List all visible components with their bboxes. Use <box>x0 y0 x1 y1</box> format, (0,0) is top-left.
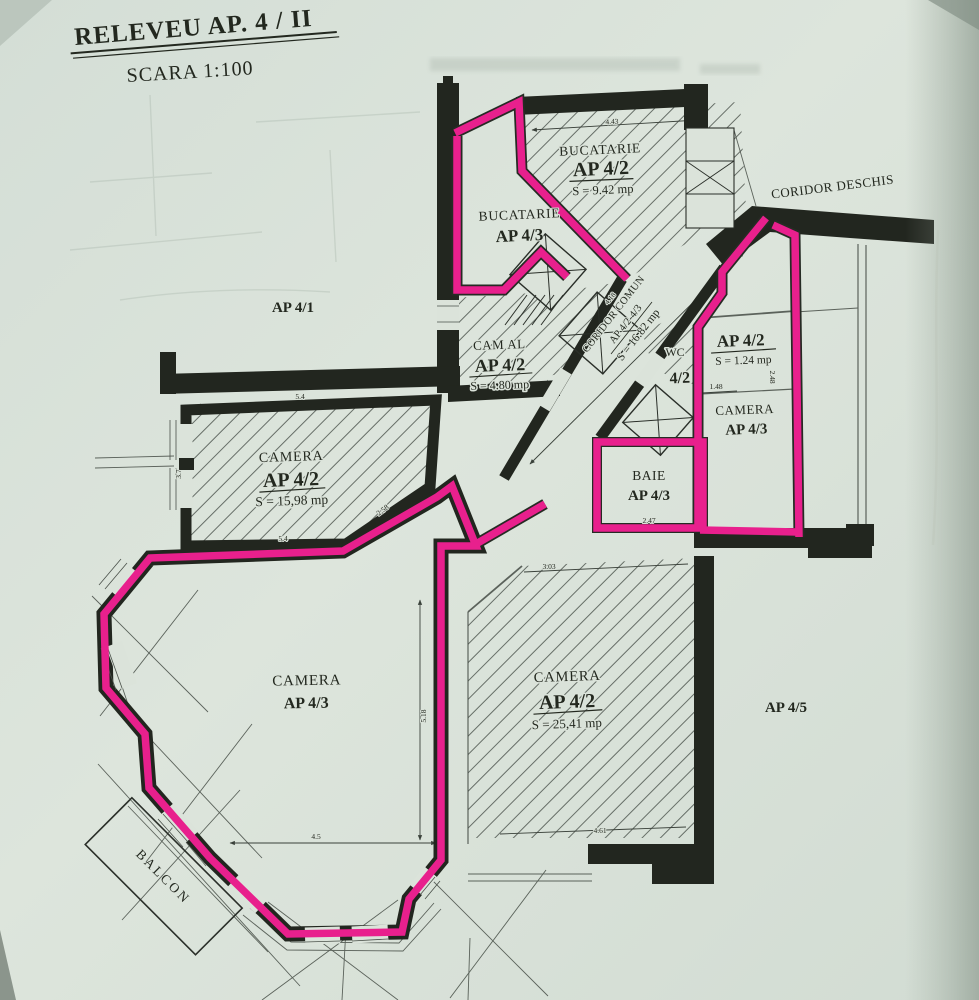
room-ap: 4/2 <box>669 370 690 388</box>
room-ap: AP 4/3 <box>495 225 543 246</box>
label-ap-4-5: AP 4/5 <box>765 700 807 716</box>
dim-kitchen-top: 4.43 <box>605 117 619 127</box>
dim-debara-h: 2.48 <box>768 370 777 383</box>
room-name: CAMERA <box>259 449 324 466</box>
room-ap: AP 4/2 <box>474 354 525 376</box>
room-area: S = 25,41 mp <box>531 715 602 732</box>
highlight-right-rooms-bottom <box>700 530 797 532</box>
dim-cam15-bottom: 5.4 <box>278 534 288 543</box>
room-area: S = 9.42 mp <box>572 182 634 199</box>
room-name: CAMERA <box>534 668 601 686</box>
room-name: CAMERA <box>272 672 341 689</box>
room-name: CAMERA <box>715 401 774 418</box>
room-ap: AP 4/2 <box>572 157 629 181</box>
room-cam-al-label: CAM AL AP 4/2 S = 4.80 mp <box>468 336 533 393</box>
room-name: BAIE <box>632 468 666 483</box>
room-camera-25-label: CAMERA AP 4/2 S = 25,41 mp <box>530 668 603 732</box>
dim-cam15-top: 5.4 <box>295 392 305 401</box>
dim-debara-w: 1.48 <box>709 382 722 391</box>
room-name: CAM AL <box>473 336 526 353</box>
label-ap-4-1: AP 4/1 <box>272 300 314 316</box>
dim-cam25-top: 3.03 <box>542 562 555 571</box>
dim-big-h: 5.18 <box>419 709 428 722</box>
dim-cam25-bottom: 4.61 <box>593 826 606 835</box>
room-area: S = 1.24 mp <box>715 354 772 368</box>
room-ap: AP 4/3 <box>628 488 670 504</box>
room-camera-15-label: CAMERA AP 4/2 S = 15,98 mp <box>254 449 329 510</box>
room-area: S = 4.80 mp <box>470 377 529 393</box>
room-name: WC <box>665 345 684 359</box>
dim-baie: 2.47 <box>642 516 655 525</box>
dim-big-w: 4.5 <box>311 832 321 841</box>
floor-plan-svg: RELEVEU AP. 4 / II SCARA 1:100 CORIDOR D… <box>0 0 979 1000</box>
room-ap: AP 4/3 <box>725 421 768 438</box>
room-area: S = 15,98 mp <box>255 492 329 510</box>
room-ap: AP 4/2 <box>717 330 765 351</box>
page-fold-shadow <box>905 0 979 1000</box>
dim-cam15-left: 3.7 <box>174 469 183 479</box>
scanned-floor-plan: RELEVEU AP. 4 / II SCARA 1:100 CORIDOR D… <box>0 0 979 1000</box>
room-ap: AP 4/3 <box>284 695 329 713</box>
